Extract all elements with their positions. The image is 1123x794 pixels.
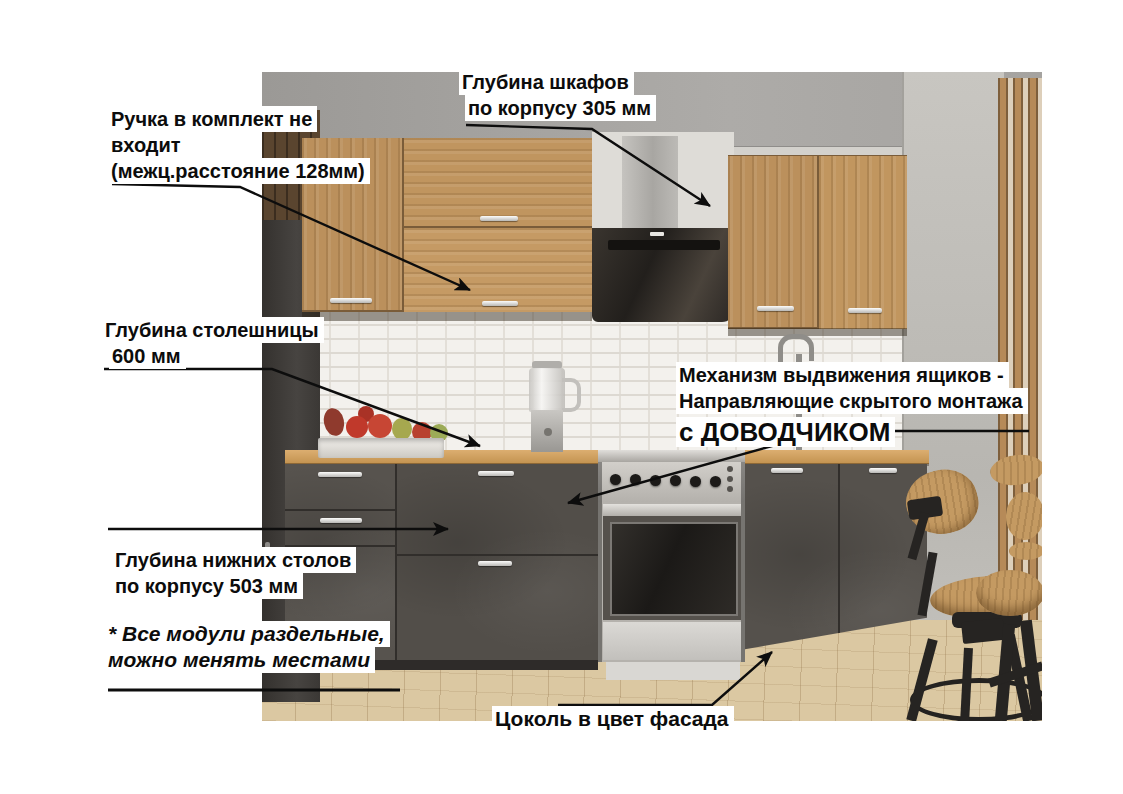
drawer-handle [318, 472, 362, 477]
stove-knob [630, 474, 641, 485]
annotation-countertop-depth: Глубина столешницы 600 мм [102, 317, 324, 369]
annotation-line: Механизм выдвижения ящиков - [676, 362, 1009, 388]
annotation-line: входит [108, 132, 186, 158]
stool-backrest [1009, 542, 1042, 560]
upper-door-flap-bottom [404, 228, 592, 312]
apple-fruit [346, 416, 368, 438]
drawer-handle [478, 471, 514, 476]
annotation-line: можно менять местами [105, 647, 375, 673]
blender-button [544, 428, 552, 436]
hood-logo [650, 232, 664, 236]
annotation-base-depth: Глубина нижних столов по корпусу 503 мм [112, 547, 356, 599]
upper-door-flap-top [404, 138, 592, 226]
annotation-line: по корпусу 305 мм [465, 95, 656, 121]
annotation-line: Глубина шкафов [459, 69, 634, 95]
stove-knob [650, 475, 661, 486]
cabinet-shadow [728, 328, 907, 336]
hood-chimney [622, 136, 678, 228]
fruit-tray [318, 438, 444, 458]
stove-side-shadow [741, 462, 745, 662]
stove-side-shadow [598, 462, 602, 662]
stool-mechanism [961, 618, 1005, 644]
drawer-gap [397, 554, 598, 556]
annotation-line: Ручка в комплект не [108, 106, 317, 132]
annotation-line-emphasis: с ДОВОДЧИКОМ [676, 417, 895, 447]
product-annotation-page: Ручка в комплект не входит (межц.расстоя… [0, 0, 1123, 794]
blender-handle [562, 378, 581, 412]
apple-fruit [368, 414, 392, 438]
annotation-line: Глубина столешницы [102, 317, 324, 343]
blender-jar [529, 368, 565, 412]
annotation-cabinet-depth: Глубина шкафов по корпусу 305 мм [459, 69, 656, 121]
upper-door-handle [482, 301, 518, 306]
stove-indicator [727, 486, 733, 492]
stove-knob [690, 476, 701, 487]
stool-seat [976, 570, 1042, 616]
annotation-line: (межц.расстояние 128мм) [108, 158, 370, 184]
annotation-drawer-mechanism: Механизм выдвижения ящиков - Направляющи… [676, 362, 1028, 443]
stove-plinth [606, 662, 740, 680]
cabinet-shadow [302, 312, 592, 321]
upper-door-handle [480, 216, 518, 221]
oven-window [610, 522, 738, 616]
annotation-modules-note: * Все модули раздельные, можно менять ме… [105, 621, 390, 673]
annotation-line: Направляющие скрытого монтажа [676, 388, 1028, 414]
drawer-handle [478, 561, 512, 566]
annotation-plinth: Цоколь в цвет фасада [492, 706, 734, 732]
module-gap [395, 464, 397, 660]
annotation-line: Глубина нижних столов [112, 547, 356, 573]
stove-knob [710, 476, 721, 487]
upper-door-handle [330, 298, 372, 303]
annotation-line: по корпусу 503 мм [112, 573, 303, 599]
annotation-handle-note: Ручка в комплект не входит (межц.расстоя… [108, 106, 370, 184]
drawer-handle [320, 518, 362, 523]
annotation-line: Цоколь в цвет фасада [492, 706, 734, 732]
stove-indicator [727, 466, 733, 472]
stove-knob [610, 474, 621, 485]
annotation-line: 600 мм [109, 343, 186, 369]
door-handle [771, 468, 803, 473]
upper-door-handle [757, 306, 794, 311]
upper-door-handle [848, 308, 882, 313]
upper-cabinet-right-group [728, 155, 907, 329]
stove-indicator [727, 476, 733, 482]
annotation-line: * Все модули раздельные, [105, 621, 390, 647]
upper-door-vertical [819, 156, 907, 329]
stove-cooktop [598, 450, 745, 462]
upper-door-vertical [728, 156, 817, 327]
drawer-gap [285, 509, 395, 511]
green-apple-fruit [392, 418, 412, 440]
stove-knob [670, 475, 681, 486]
door-handle [869, 468, 897, 473]
oven-handle-bar [603, 504, 741, 516]
hood-vent-slot [608, 240, 720, 250]
stove-bottom-drawer [603, 622, 741, 660]
